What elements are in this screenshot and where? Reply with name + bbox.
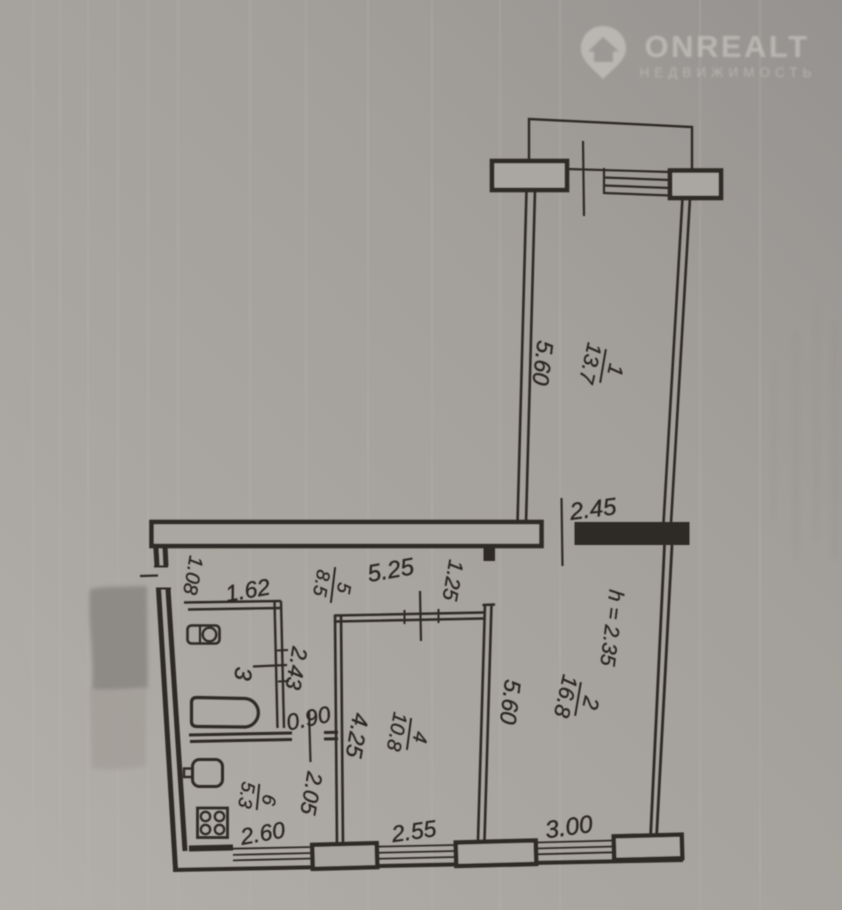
svg-text:5.60: 5.60 — [495, 678, 526, 726]
svg-text:5.60: 5.60 — [527, 339, 558, 387]
svg-text:НЕДВИЖИМОСТЬ: НЕДВИЖИМОСТЬ — [640, 65, 817, 80]
svg-text:ONREALT: ONREALT — [644, 29, 809, 64]
